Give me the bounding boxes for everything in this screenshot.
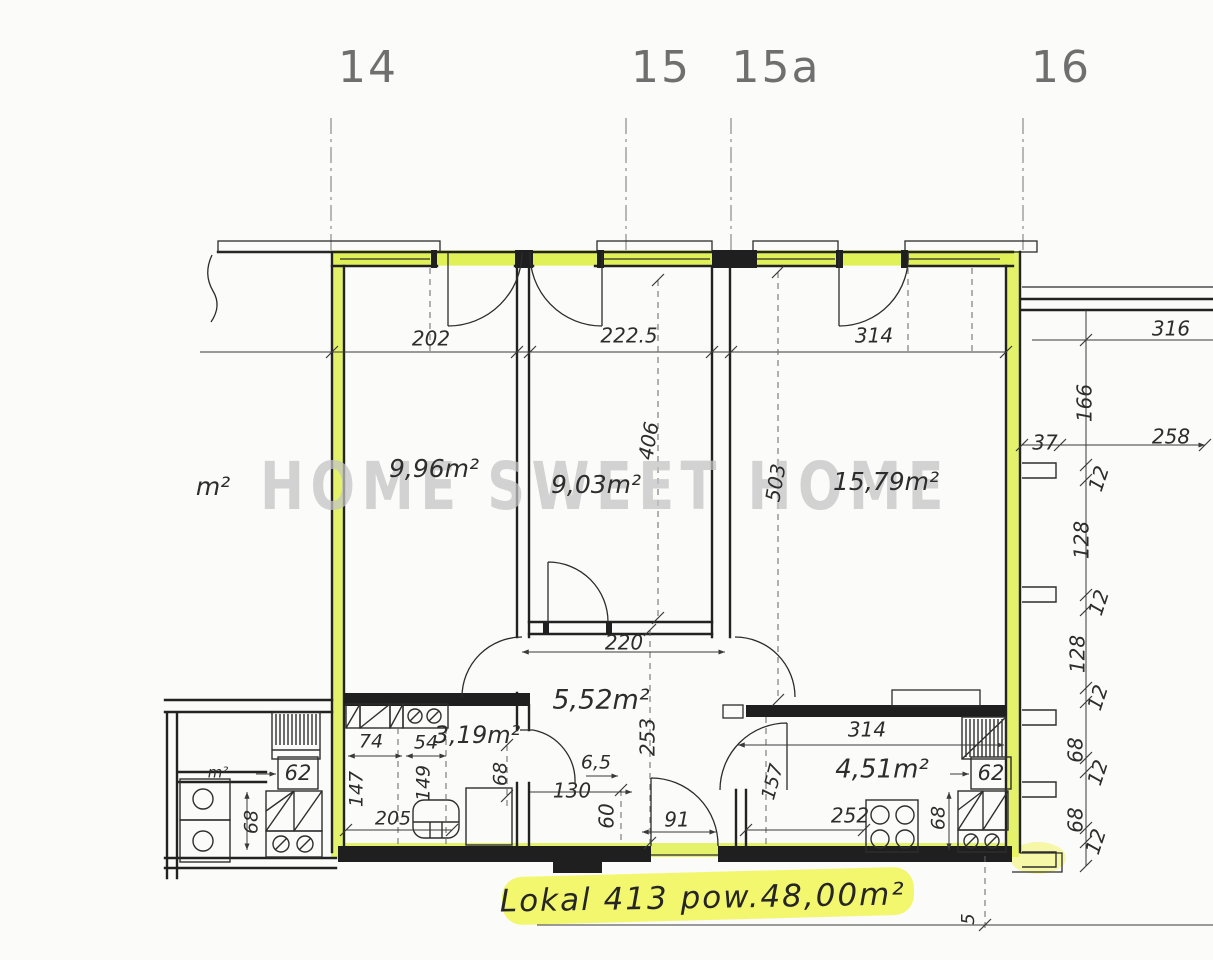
bathroom-area: 3,19m² bbox=[434, 721, 521, 749]
neighbor-sink bbox=[266, 831, 322, 857]
dim-label: 12 bbox=[1083, 587, 1114, 619]
dim-label: 91 bbox=[664, 808, 689, 832]
dim-label: 220 bbox=[605, 631, 643, 655]
axis-label-14: 14 bbox=[338, 42, 398, 93]
dim-label: 147 bbox=[346, 771, 368, 807]
bathroom-washer-sink bbox=[346, 704, 448, 728]
room-1-area: 9,96m² bbox=[389, 454, 479, 483]
highlight-layer bbox=[334, 250, 1066, 925]
dim-label: 60 bbox=[595, 803, 619, 828]
dim-label: 205 bbox=[375, 808, 411, 830]
dimension-lines-layer bbox=[200, 266, 1213, 932]
neighbor-room-area-partial: m² bbox=[196, 472, 230, 501]
walls-layer bbox=[165, 241, 1213, 878]
room-2-area: 9,03m² bbox=[551, 470, 641, 499]
dim-label: 130 bbox=[553, 779, 591, 803]
dim-label: 314 bbox=[848, 718, 886, 742]
highlight-smudge bbox=[1010, 842, 1066, 874]
axis-label-16: 16 bbox=[1031, 42, 1091, 93]
axis-label-15: 15 bbox=[631, 42, 691, 93]
dim-label: 68 bbox=[928, 806, 950, 830]
dim-label: 166 bbox=[1073, 384, 1097, 422]
neighbor-bath-area-partial: m² bbox=[208, 764, 229, 782]
room-3-area: 15,79m² bbox=[833, 467, 939, 496]
dim-label: 37 bbox=[1032, 431, 1058, 455]
room2-door bbox=[548, 562, 608, 622]
bathroom-door bbox=[520, 730, 575, 783]
kitchen-area: 4,51m² bbox=[835, 755, 929, 785]
dim-label: 252 bbox=[831, 804, 869, 828]
dim-label: 258 bbox=[1152, 425, 1190, 449]
kitchen-shaft bbox=[962, 717, 1006, 759]
dim-label: 316 bbox=[1152, 317, 1190, 341]
dim-label: 157 bbox=[757, 762, 788, 803]
kitchen-washer bbox=[958, 791, 1008, 830]
bathroom-toilet bbox=[413, 800, 459, 838]
neighbor-radiator bbox=[272, 712, 320, 759]
neighbor-radiator-dim: 62 bbox=[285, 761, 312, 785]
dim-label: 202 bbox=[412, 327, 450, 351]
hall-area: 5,52m² bbox=[552, 685, 649, 716]
dim-label: 149 bbox=[413, 765, 435, 801]
dim-label: 74 bbox=[359, 731, 383, 753]
dim-label: 5 bbox=[958, 913, 979, 924]
axis-lines-layer bbox=[331, 118, 1023, 252]
dim-label: 68 bbox=[490, 762, 512, 786]
floor-plan-page: HOME SWEET HOME Lokal 413 pow.48,00m² 14… bbox=[0, 0, 1213, 960]
dim-label: 68 bbox=[1064, 737, 1088, 762]
axis-label-15a: 15a bbox=[732, 42, 821, 93]
bathroom-tub bbox=[466, 788, 512, 845]
dim-label: 128 bbox=[1070, 521, 1094, 559]
dim-label: 12 bbox=[1083, 463, 1114, 495]
dim-label: 68 bbox=[241, 810, 263, 834]
dim-label: 6,5 bbox=[581, 752, 611, 774]
dim-label: 68 bbox=[1064, 807, 1088, 832]
room1-door bbox=[462, 637, 522, 697]
dim-label: 314 bbox=[855, 324, 893, 348]
floor-plan-svg: HOME SWEET HOME Lokal 413 pow.48,00m² 14… bbox=[0, 0, 1213, 960]
room3-door bbox=[735, 637, 795, 697]
unit-caption: Lokal 413 pow.48,00m² bbox=[500, 876, 906, 919]
dim-label: 253 bbox=[636, 718, 660, 756]
neighbor-washer bbox=[266, 791, 322, 831]
neighbor-hob bbox=[180, 779, 230, 862]
dim-label: 128 bbox=[1066, 635, 1090, 673]
dim-label: 222.5 bbox=[600, 324, 657, 348]
kitchen-radiator-dim: 62 bbox=[978, 761, 1005, 785]
